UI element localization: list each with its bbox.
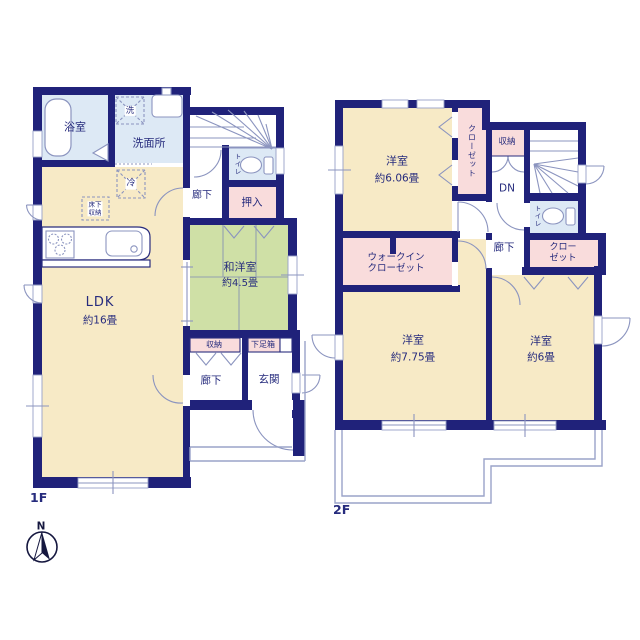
wall-segment bbox=[335, 285, 460, 292]
underfloor-storage-label: 床下 収納 bbox=[88, 201, 103, 216]
wall-segment bbox=[482, 122, 586, 130]
shoebox-label: 下足箱 bbox=[251, 340, 275, 350]
room-bed1 bbox=[343, 108, 452, 231]
wall-segment bbox=[183, 330, 297, 338]
toilet-1f-label: トイレ bbox=[232, 153, 242, 176]
hall-2f-label: 廊下 bbox=[494, 242, 515, 255]
bed3-size-label: 約6畳 bbox=[527, 352, 555, 365]
laundry-label: 洗 bbox=[125, 106, 136, 116]
bath-label: 浴室 bbox=[64, 120, 86, 133]
wall-segment bbox=[33, 87, 191, 95]
bed1-label: 洋室 bbox=[386, 154, 408, 167]
wall-segment bbox=[186, 107, 284, 115]
washroom-label: 洗面所 bbox=[133, 136, 166, 149]
wall-segment bbox=[524, 233, 606, 240]
wall-segment bbox=[335, 420, 606, 430]
wall-segment bbox=[222, 145, 229, 218]
wall-segment bbox=[183, 218, 297, 225]
wall-segment bbox=[335, 100, 490, 108]
wall-segment bbox=[33, 160, 115, 167]
stairs-1f-icon bbox=[190, 110, 276, 149]
fridge-label: 冷 bbox=[125, 179, 136, 190]
balcony-lines bbox=[335, 430, 602, 503]
storage-1f-label: 収納 bbox=[206, 340, 222, 350]
bed3-label: 洋室 bbox=[530, 334, 552, 347]
wall-segment bbox=[242, 338, 248, 402]
ldk-size-label: 約16畳 bbox=[83, 315, 117, 328]
room-bed2-nook bbox=[458, 239, 486, 292]
wall-segment bbox=[335, 100, 343, 430]
wall-segment bbox=[33, 477, 191, 488]
wall-segment bbox=[524, 122, 530, 201]
floor-plan: 浴室 洗 洗面所 冷 床下 収納 LDK 約16畳 廊下 トイレ 押入 和洋室 … bbox=[0, 0, 640, 640]
wall-segment bbox=[524, 193, 586, 201]
storage-2f-label: 収納 bbox=[498, 137, 515, 147]
bed1-size-label: 約6.06畳 bbox=[375, 173, 419, 186]
wall-segment bbox=[335, 231, 460, 238]
hall-lower-label: 廊下 bbox=[201, 375, 222, 388]
wall-segment bbox=[293, 400, 305, 456]
wall-segment bbox=[578, 122, 586, 233]
wall-segment bbox=[288, 218, 297, 338]
wall-segment bbox=[229, 180, 282, 187]
closet1-label: クローゼット bbox=[467, 124, 478, 178]
wall-segment bbox=[452, 108, 458, 201]
closet2-label: クロー ゼット bbox=[549, 242, 576, 263]
compass-icon bbox=[27, 532, 57, 562]
stairs-2f-icon bbox=[530, 141, 578, 193]
wall-segment bbox=[33, 87, 42, 488]
wall-segment bbox=[594, 266, 602, 430]
floor2-label: 2F bbox=[333, 502, 350, 517]
bed2-label: 洋室 bbox=[402, 333, 424, 346]
wic-label: ウォークイン クローゼット bbox=[367, 252, 424, 274]
wall-segment bbox=[276, 107, 284, 225]
ldk-label: LDK bbox=[86, 295, 115, 311]
floor1-label: 1F bbox=[30, 490, 47, 505]
toilet-2f-label: トイレ bbox=[532, 205, 542, 228]
hall-upper-label: 廊下 bbox=[192, 190, 212, 202]
bed2-size-label: 約7.75畳 bbox=[391, 352, 435, 365]
stairs-down-label: DN bbox=[499, 183, 515, 196]
wall-segment bbox=[183, 87, 190, 488]
entrance-label: 玄関 bbox=[259, 374, 280, 387]
washitsu-size-label: 約4.5畳 bbox=[222, 278, 258, 290]
wall-segment bbox=[486, 267, 606, 275]
compass-north-label: N bbox=[37, 521, 46, 534]
washitsu-label: 和洋室 bbox=[224, 260, 257, 273]
wall-segment bbox=[108, 95, 115, 160]
wall-segment bbox=[452, 231, 458, 292]
oshiire-label: 押入 bbox=[242, 197, 263, 210]
